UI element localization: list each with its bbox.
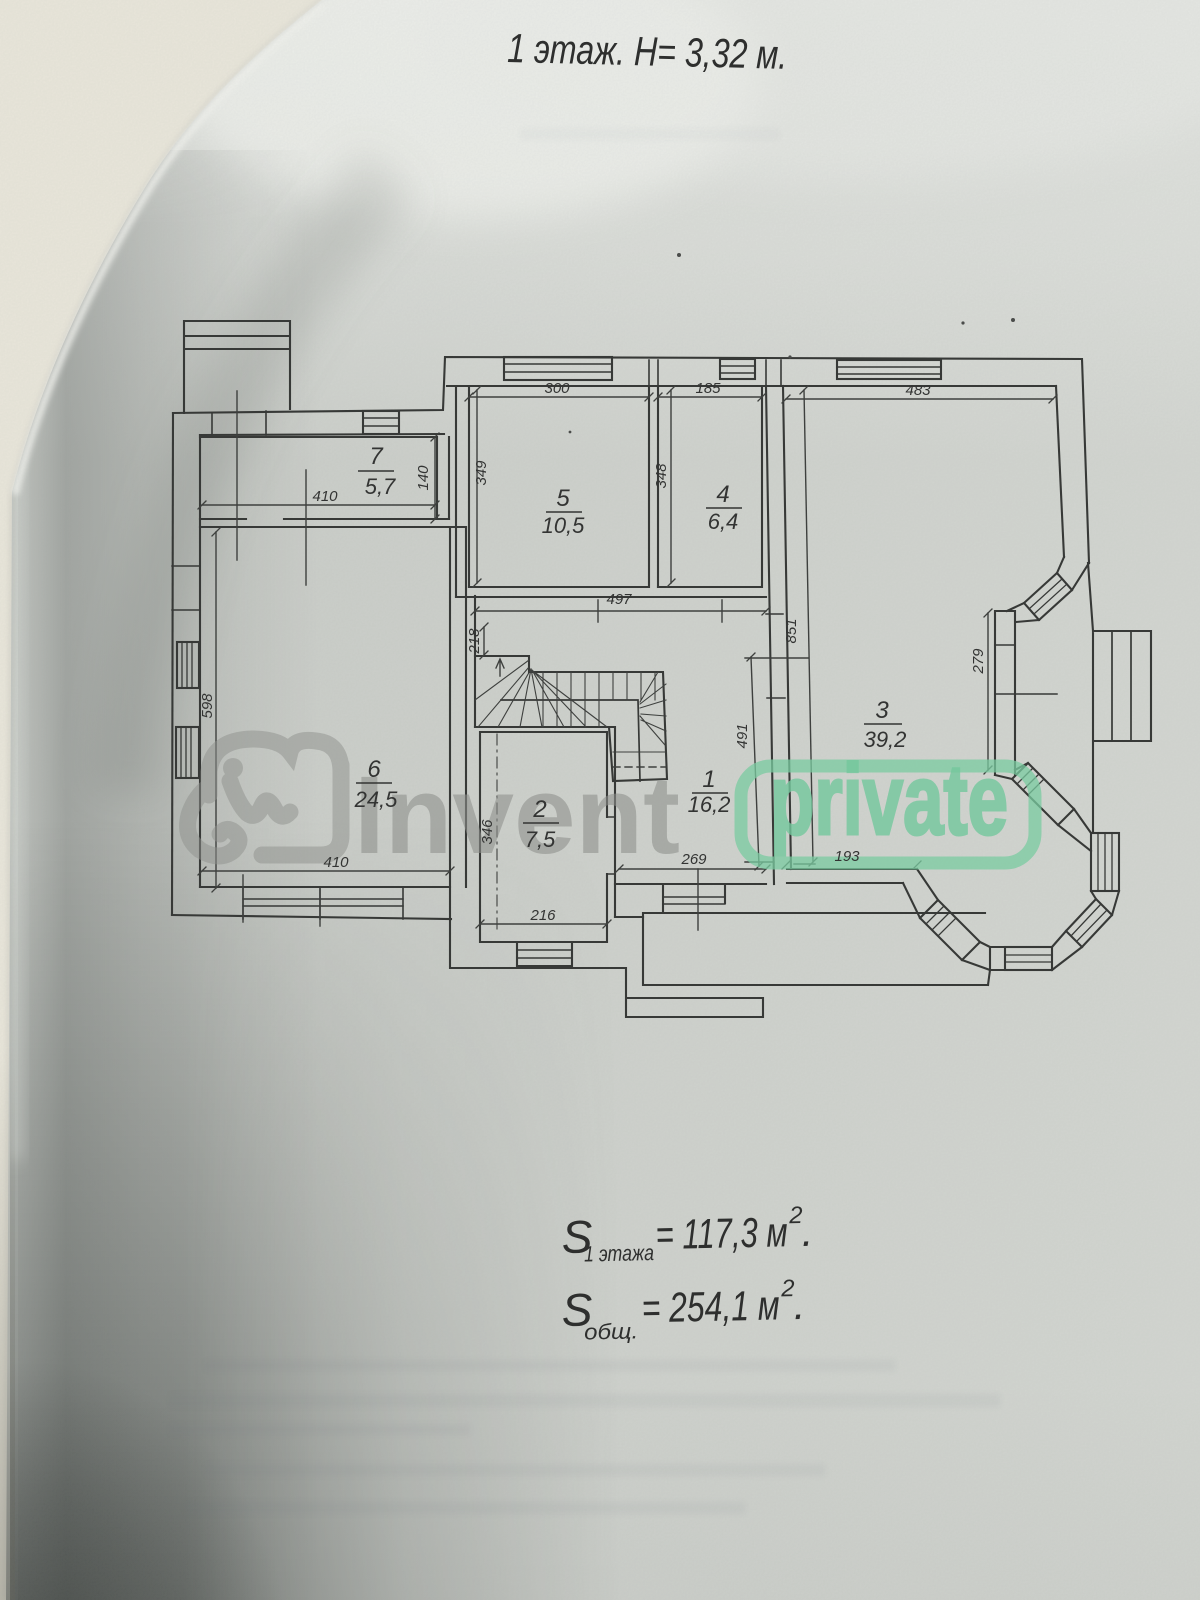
svg-text:Invent: Invent — [354, 754, 680, 877]
svg-text:218: 218 — [466, 628, 483, 655]
svg-text:= 254,1 м: = 254,1 м — [641, 1281, 780, 1331]
svg-text:= 117,3 м: = 117,3 м — [655, 1208, 788, 1258]
svg-text:.: . — [801, 1208, 814, 1255]
svg-text:279: 279 — [970, 648, 987, 675]
svg-text:24,5: 24,5 — [354, 787, 399, 812]
svg-text:346: 346 — [479, 819, 496, 845]
svg-text:851: 851 — [783, 618, 800, 643]
svg-text:10,5: 10,5 — [542, 513, 586, 538]
svg-text:1 этаж. H= 3,32 м.: 1 этаж. H= 3,32 м. — [507, 25, 788, 78]
svg-text:193: 193 — [834, 848, 860, 865]
svg-text:483: 483 — [905, 382, 931, 399]
svg-text:16,2: 16,2 — [688, 792, 731, 817]
svg-text:5: 5 — [556, 485, 570, 512]
svg-text:410: 410 — [312, 488, 338, 505]
svg-text:1 этажа: 1 этажа — [584, 1240, 655, 1266]
svg-text:216: 216 — [529, 907, 556, 924]
svg-text:7: 7 — [369, 443, 384, 470]
svg-text:7,5: 7,5 — [525, 827, 556, 852]
svg-text:private: private — [770, 744, 1008, 856]
svg-text:598: 598 — [199, 693, 216, 719]
svg-text:185: 185 — [695, 380, 721, 397]
svg-text:410: 410 — [323, 854, 349, 871]
svg-text:39,2: 39,2 — [864, 727, 907, 752]
svg-text:общ.: общ. — [584, 1318, 639, 1344]
svg-text:140: 140 — [415, 465, 432, 491]
svg-text:4: 4 — [716, 481, 729, 508]
svg-text:269: 269 — [680, 851, 707, 868]
svg-text:6,4: 6,4 — [708, 509, 739, 534]
svg-text:3: 3 — [875, 697, 889, 724]
svg-text:1: 1 — [702, 766, 715, 793]
svg-text:491: 491 — [734, 723, 751, 748]
svg-text:497: 497 — [606, 591, 632, 608]
svg-text:2: 2 — [532, 796, 546, 823]
svg-text:348: 348 — [653, 463, 670, 489]
svg-text:300: 300 — [544, 380, 570, 397]
svg-text:6: 6 — [367, 756, 381, 783]
svg-text:.: . — [793, 1281, 806, 1328]
svg-text:5,7: 5,7 — [365, 474, 396, 499]
svg-text:349: 349 — [473, 460, 490, 486]
